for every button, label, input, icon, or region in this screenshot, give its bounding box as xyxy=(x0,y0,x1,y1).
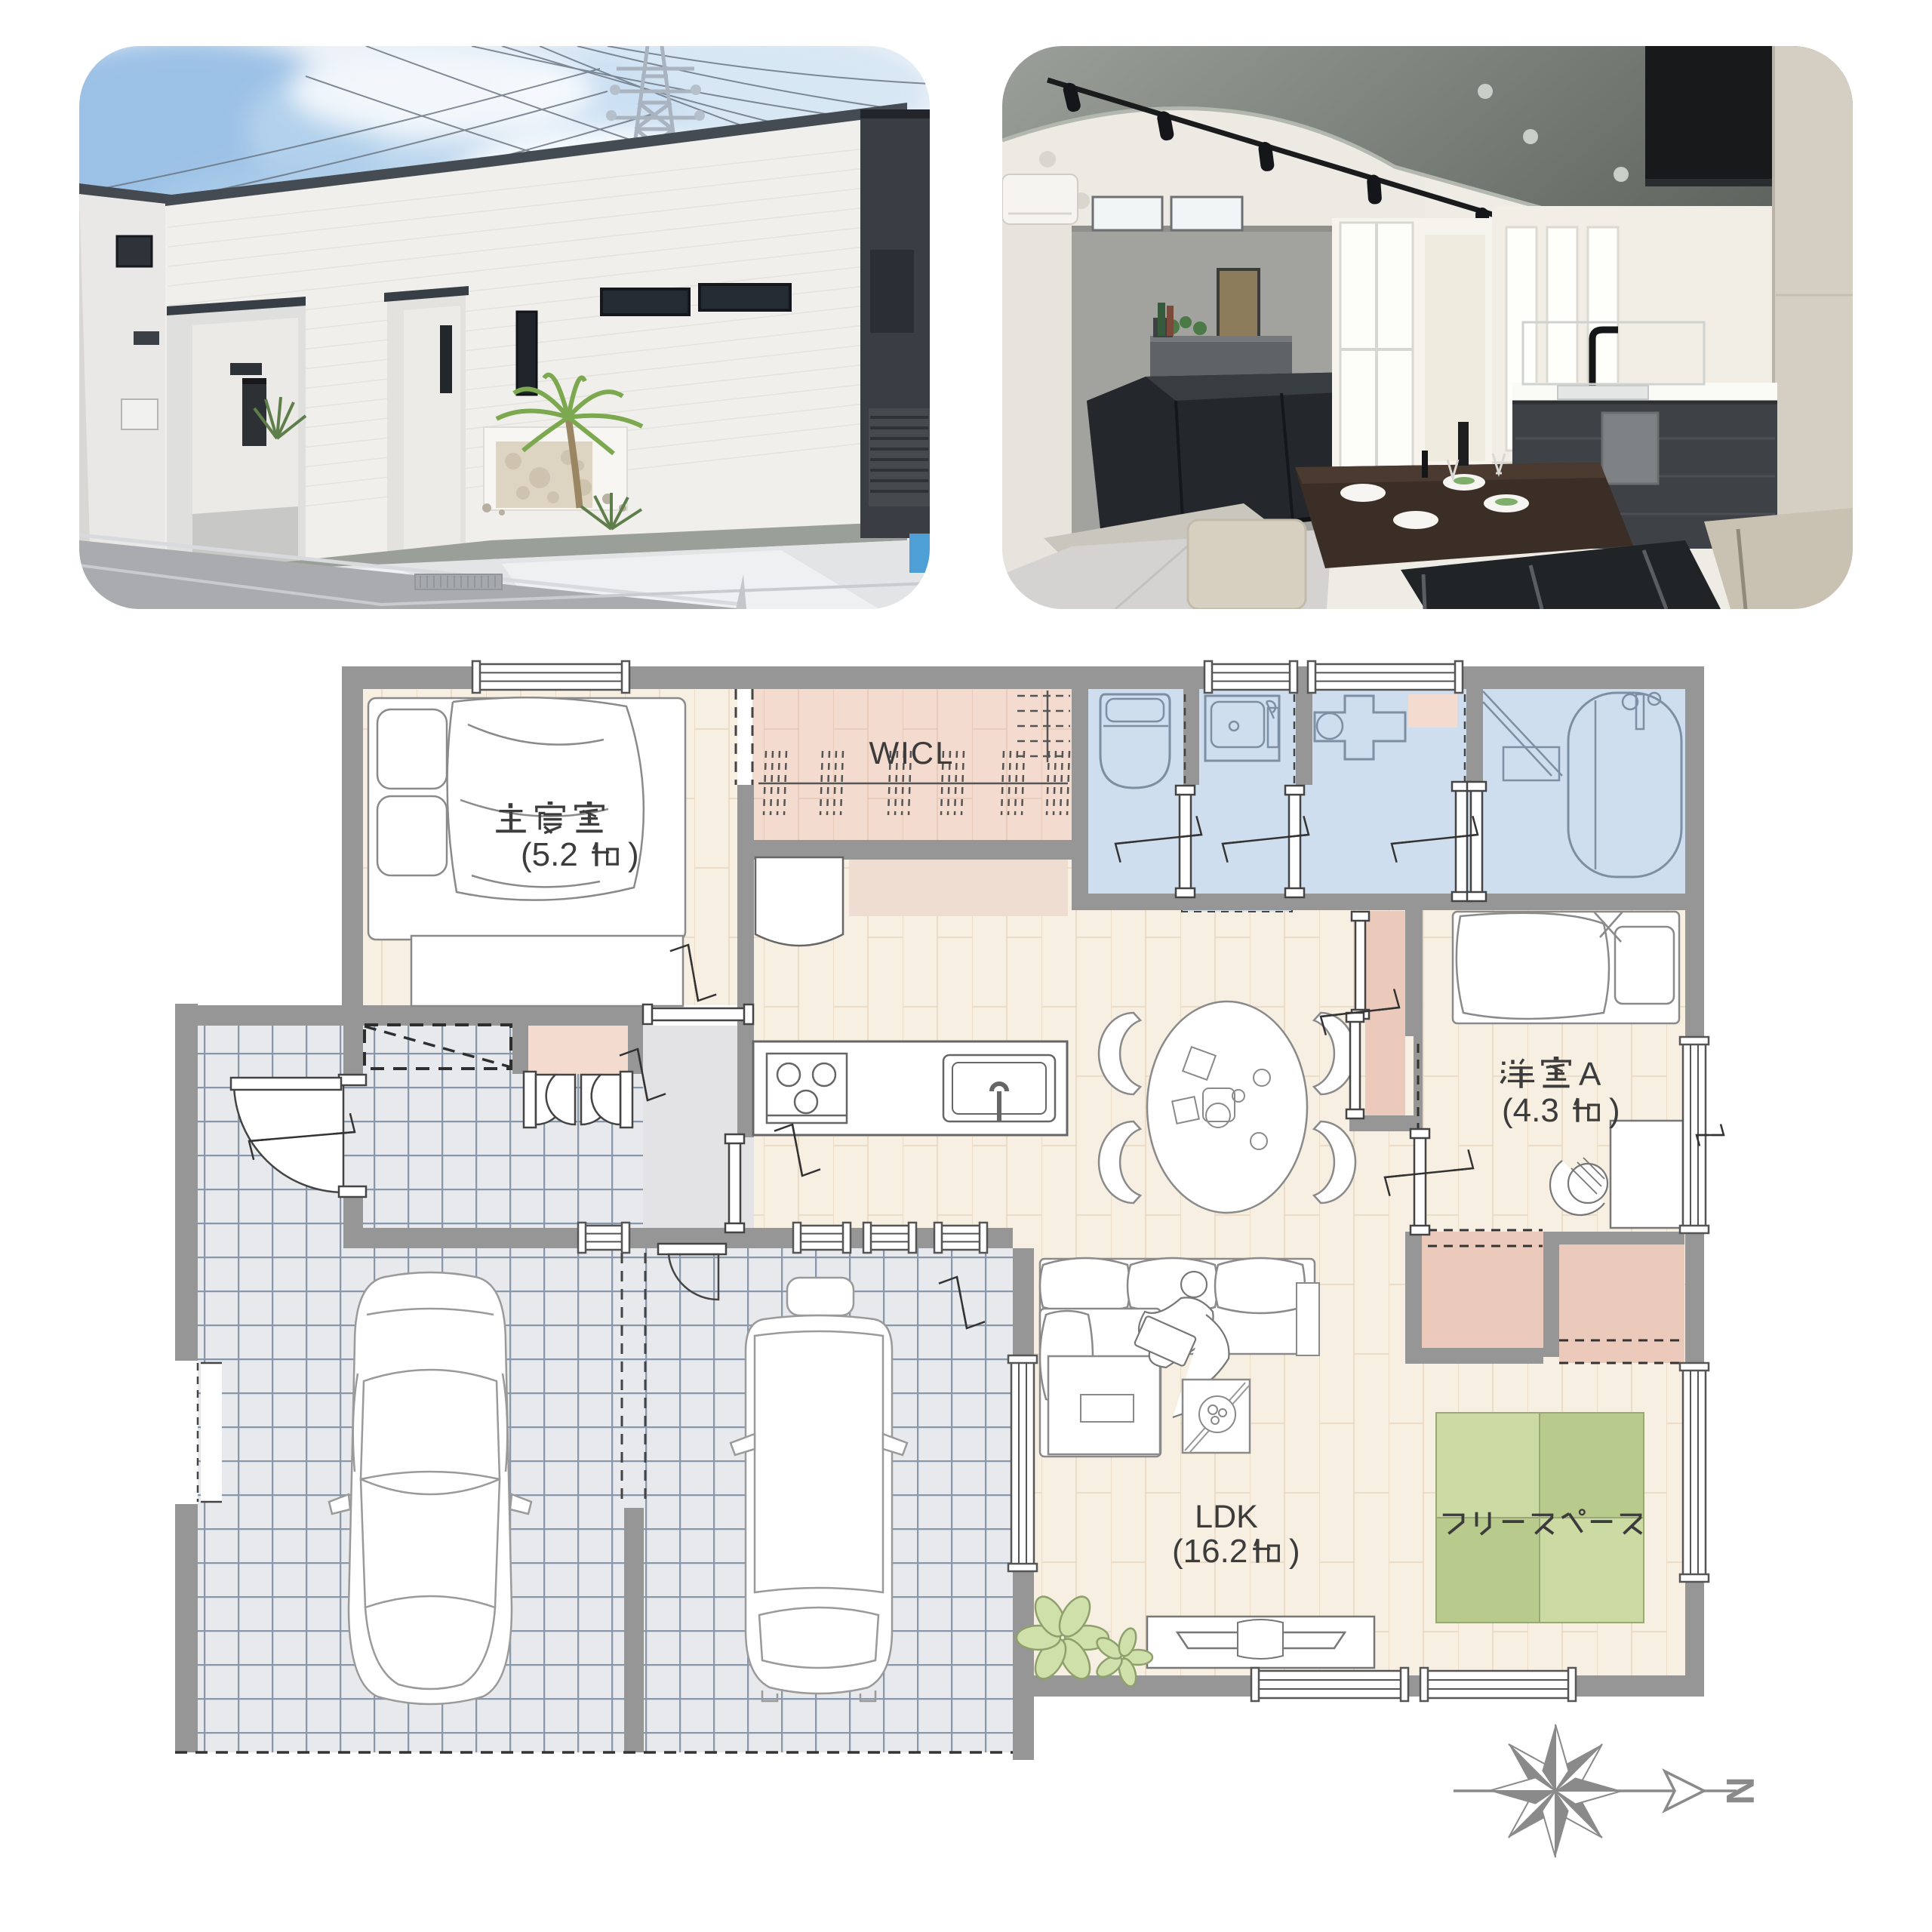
svg-text:N: N xyxy=(1718,1777,1761,1805)
svg-text:LDK: LDK xyxy=(1195,1499,1258,1535)
svg-text:A: A xyxy=(1579,1056,1601,1093)
svg-text:): ) xyxy=(628,836,639,873)
svg-text:(4.3: (4.3 xyxy=(1502,1092,1559,1129)
svg-text:): ) xyxy=(1289,1533,1300,1570)
svg-text:(5.2: (5.2 xyxy=(521,836,578,873)
svg-text:): ) xyxy=(1609,1092,1620,1129)
svg-text:WICL: WICL xyxy=(869,735,955,771)
svg-text:(16.2: (16.2 xyxy=(1172,1533,1247,1570)
